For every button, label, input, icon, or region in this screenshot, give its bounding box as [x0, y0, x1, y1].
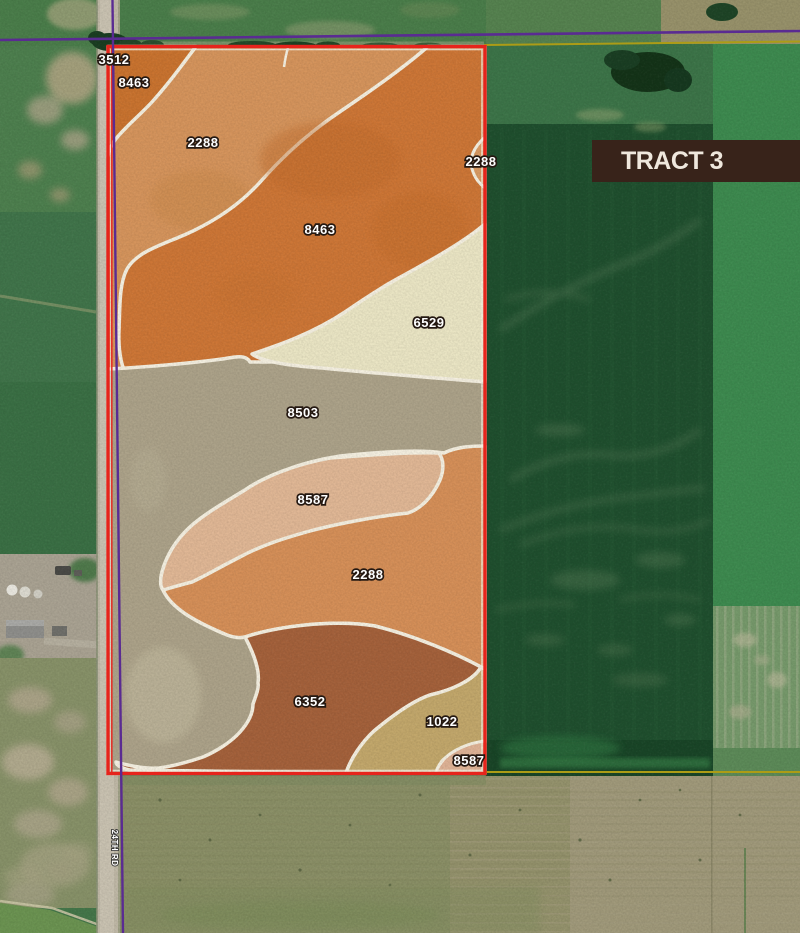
svg-text:8587: 8587 — [454, 753, 485, 768]
svg-text:8587: 8587 — [298, 492, 329, 507]
svg-text:2288: 2288 — [353, 567, 384, 582]
svg-text:TRACT 3: TRACT 3 — [621, 147, 723, 175]
svg-text:24TH RD: 24TH RD — [110, 830, 119, 867]
svg-text:2288: 2288 — [466, 154, 497, 169]
svg-text:2288: 2288 — [188, 135, 219, 150]
svg-text:8503: 8503 — [288, 405, 319, 420]
svg-text:1022: 1022 — [427, 714, 458, 729]
svg-text:8463: 8463 — [305, 222, 336, 237]
svg-text:6352: 6352 — [295, 694, 326, 709]
svg-text:3512: 3512 — [99, 52, 130, 67]
svg-text:8463: 8463 — [119, 75, 150, 90]
svg-text:6529: 6529 — [414, 315, 445, 330]
